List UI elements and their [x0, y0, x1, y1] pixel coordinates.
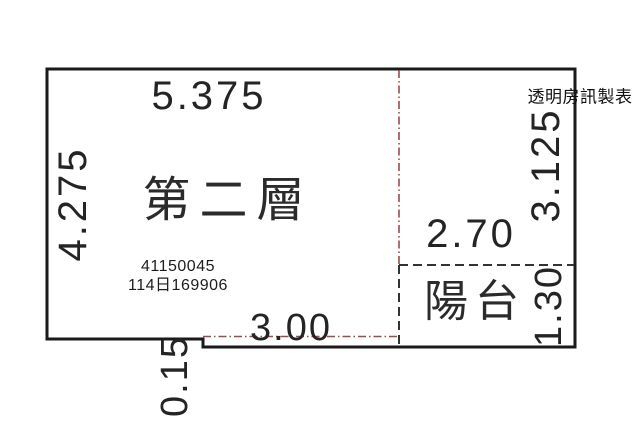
dimension-balcony-depth: 1.30: [530, 265, 568, 347]
registration-number-line2: 114日169906: [128, 278, 228, 294]
floor-plan-page: 5.375 4.275 3.00 0.15 2.70 3.125 1.30 第二…: [0, 0, 640, 445]
dimension-right-height: 3.125: [526, 107, 566, 222]
dimension-left-height: 4.275: [53, 146, 93, 261]
room-label-second-floor: 第二層: [142, 177, 313, 225]
dimension-step-depth: 0.15: [156, 335, 194, 417]
watermark-credit: 透明房訊製表: [528, 89, 633, 106]
registration-number-line1: 41150045: [141, 259, 215, 275]
dimension-balcony-width: 2.70: [426, 214, 516, 254]
dimension-bottom-inner-width: 3.00: [250, 309, 332, 347]
dimension-top-width: 5.375: [151, 76, 266, 116]
balcony-label: 陽台: [424, 280, 526, 324]
